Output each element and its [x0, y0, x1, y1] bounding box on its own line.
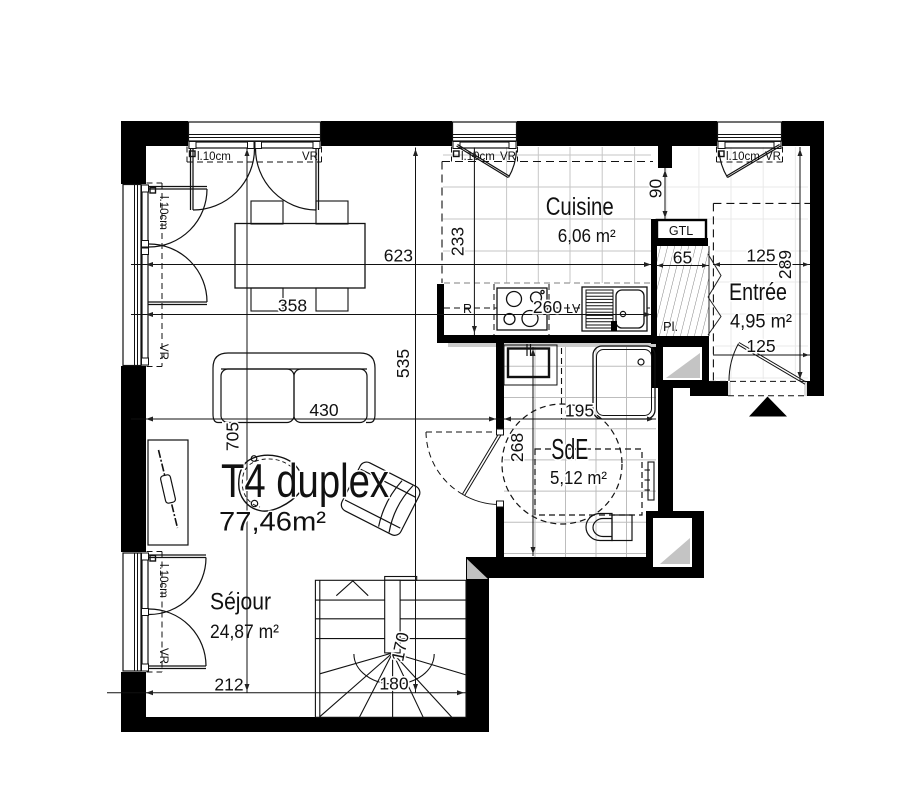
svg-text:SdE: SdE [551, 434, 588, 466]
svg-text:6,06 m²: 6,06 m² [558, 226, 616, 246]
svg-text:l.10cm: l.10cm [157, 196, 169, 230]
svg-text:Entrée: Entrée [729, 279, 787, 306]
svg-text:24,87 m²: 24,87 m² [210, 622, 279, 643]
svg-text:212: 212 [214, 675, 243, 695]
svg-text:l.10cm: l.10cm [461, 151, 495, 163]
svg-text:LV: LV [566, 302, 581, 316]
svg-text:358: 358 [278, 296, 307, 316]
svg-text:260: 260 [533, 297, 562, 317]
svg-text:233: 233 [448, 227, 468, 256]
svg-text:Pl.: Pl. [663, 319, 678, 334]
svg-text:VR: VR [765, 151, 781, 163]
svg-text:289: 289 [775, 250, 795, 279]
svg-text:180: 180 [379, 674, 408, 694]
svg-text:VR: VR [157, 648, 169, 664]
svg-text:705: 705 [223, 422, 243, 451]
svg-text:623: 623 [384, 246, 413, 266]
svg-text:195: 195 [565, 401, 594, 421]
svg-text:90: 90 [646, 179, 666, 199]
svg-text:l.10cm: l.10cm [726, 151, 760, 163]
svg-text:4,95 m²: 4,95 m² [730, 312, 792, 333]
svg-text:R: R [463, 302, 472, 316]
svg-text:l.10cm: l.10cm [197, 151, 231, 163]
svg-text:430: 430 [309, 400, 338, 420]
svg-text:5,12 m²: 5,12 m² [550, 468, 607, 488]
svg-text:268: 268 [507, 433, 527, 462]
svg-text:125: 125 [746, 336, 775, 356]
svg-text:Cuisine: Cuisine [546, 193, 614, 221]
svg-text:Séjour: Séjour [210, 589, 271, 616]
svg-text:T4 duplex: T4 duplex [221, 454, 389, 507]
svg-text:GTL: GTL [669, 224, 693, 238]
svg-text:VR: VR [157, 344, 169, 360]
svg-text:77,46m²: 77,46m² [219, 507, 326, 537]
svg-text:65: 65 [673, 248, 692, 268]
svg-text:l.10cm: l.10cm [157, 564, 169, 598]
svg-text:535: 535 [393, 349, 413, 378]
svg-text:VR: VR [302, 151, 318, 163]
svg-text:125: 125 [746, 246, 775, 266]
